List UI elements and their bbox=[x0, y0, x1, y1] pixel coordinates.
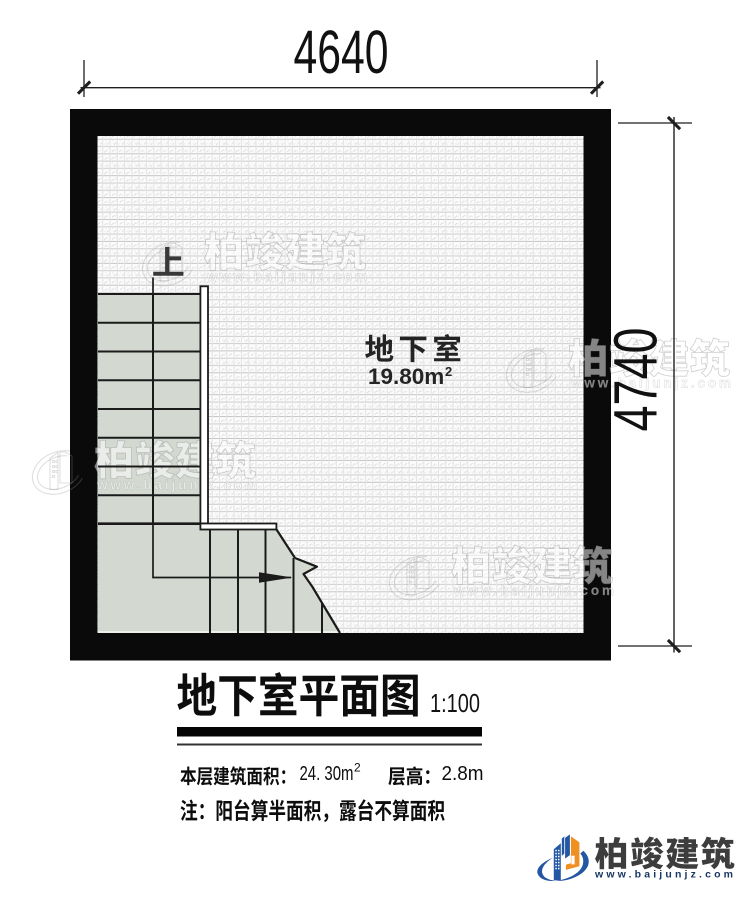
svg-text:www.baijunjz.com: www.baijunjz.com bbox=[594, 869, 733, 881]
svg-text:2: 2 bbox=[445, 364, 452, 379]
svg-text:4740: 4740 bbox=[602, 328, 670, 432]
svg-text:2.8m: 2.8m bbox=[442, 763, 484, 785]
svg-text:19.80m: 19.80m bbox=[368, 364, 444, 389]
svg-text:1:100: 1:100 bbox=[430, 688, 480, 718]
svg-text:4640: 4640 bbox=[294, 18, 389, 86]
svg-text:24. 30m: 24. 30m bbox=[300, 763, 354, 785]
svg-text:2: 2 bbox=[354, 761, 361, 775]
